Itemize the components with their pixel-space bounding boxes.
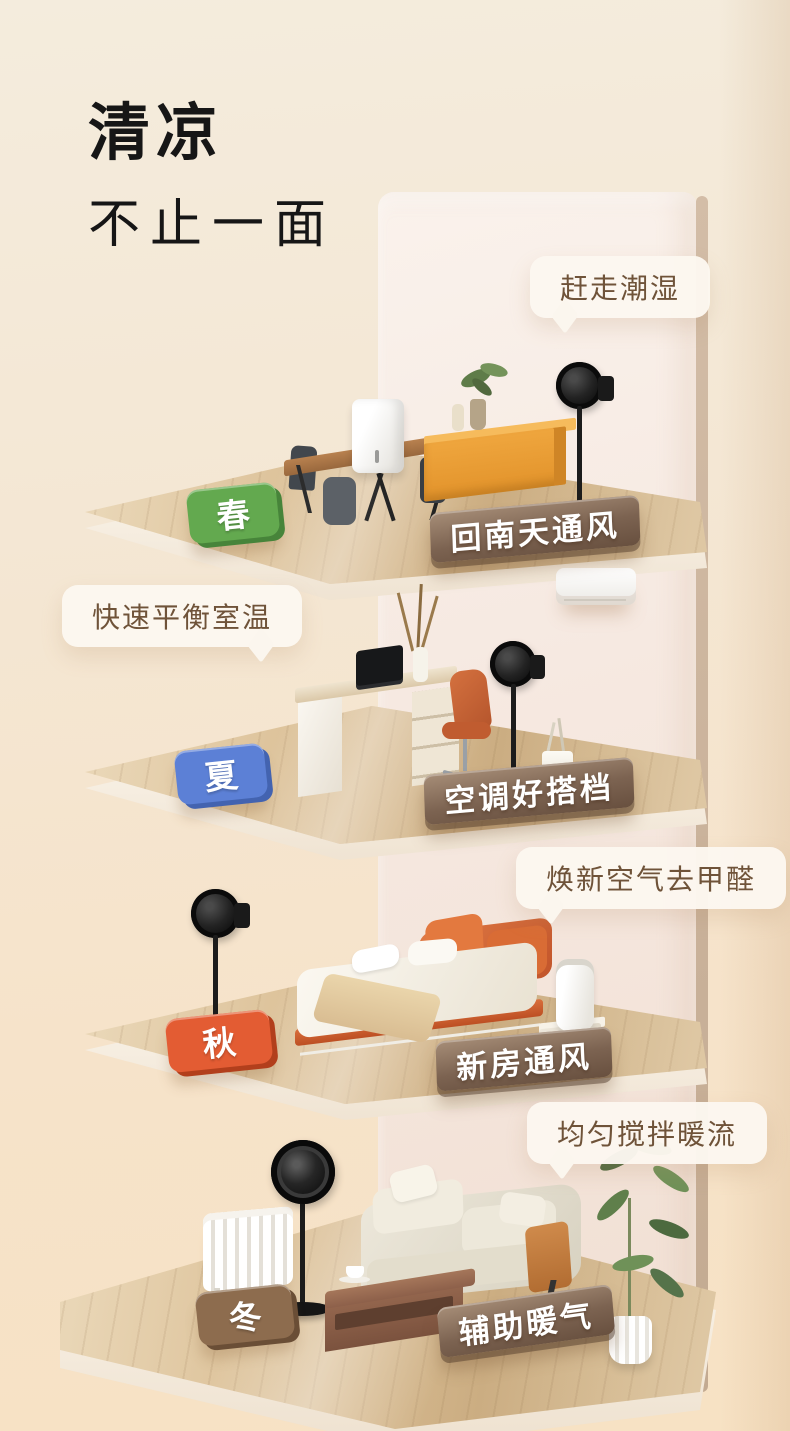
dining-chair-illustration [323, 477, 356, 525]
callout-bubble-summer: 快速平衡室温 [62, 585, 302, 647]
floor-label-text: 新房通风 [455, 1031, 592, 1088]
page-title-line1: 清凉 [88, 100, 336, 168]
callout-bubble-spring: 赶走潮湿 [530, 256, 710, 318]
desk-side-panel [298, 687, 342, 797]
air-conditioner-illustration [556, 568, 636, 605]
desk-vase [413, 647, 428, 682]
decor-bottle [452, 404, 464, 431]
pedestal-fan-head [191, 889, 240, 938]
circulator-fan-head [271, 1140, 335, 1204]
circulator-fan-pole [300, 1200, 305, 1310]
sofa-pillow [498, 1191, 547, 1228]
pedestal-fan-head [556, 362, 603, 409]
office-chair-seat [442, 722, 491, 739]
pedestal-fan-motor [598, 376, 614, 401]
page-title-line2: 不止一面 [88, 182, 336, 257]
plant-pot [609, 1316, 652, 1364]
season-tag-winter: 冬 [194, 1283, 295, 1347]
callout-text-summer: 快速平衡室温 [92, 596, 272, 636]
laptop-illustration [356, 645, 403, 687]
callout-bubble-winter: 均匀搅拌暖流 [527, 1102, 767, 1164]
season-tag-text: 冬 [226, 1289, 264, 1340]
pedestal-fan-motor [530, 655, 545, 679]
callout-text-winter: 均匀搅拌暖流 [557, 1113, 737, 1153]
decor-vase [470, 399, 486, 430]
office-chair-post [463, 737, 467, 771]
dehumidifier-illustration [352, 399, 404, 473]
callout-text-autumn: 焕新空气去甲醛 [546, 858, 756, 898]
throw-blanket [525, 1221, 572, 1294]
dehumidifier-handle [375, 450, 379, 463]
season-tag-text: 春 [214, 487, 252, 538]
season-tag-text: 夏 [202, 748, 240, 799]
air-purifier-illustration [556, 959, 594, 1031]
season-tag-spring: 春 [185, 481, 280, 544]
radiator-heater-illustration [203, 1206, 293, 1292]
season-tag-autumn: 秋 [164, 1009, 273, 1074]
promo-page: 清凉 不止一面 赶走潮湿 春 [0, 0, 790, 1431]
pedestal-fan-pole [577, 406, 582, 512]
season-tag-text: 秋 [200, 1015, 238, 1066]
ac-vent [564, 599, 626, 601]
callout-text-spring: 赶走潮湿 [560, 267, 680, 307]
coffee-cup-illustration [346, 1266, 364, 1278]
season-tag-summer: 夏 [173, 742, 268, 805]
page-title: 清凉 不止一面 [88, 100, 336, 257]
callout-bubble-autumn: 焕新空气去甲醛 [516, 847, 786, 909]
pedestal-fan-motor [234, 903, 250, 928]
